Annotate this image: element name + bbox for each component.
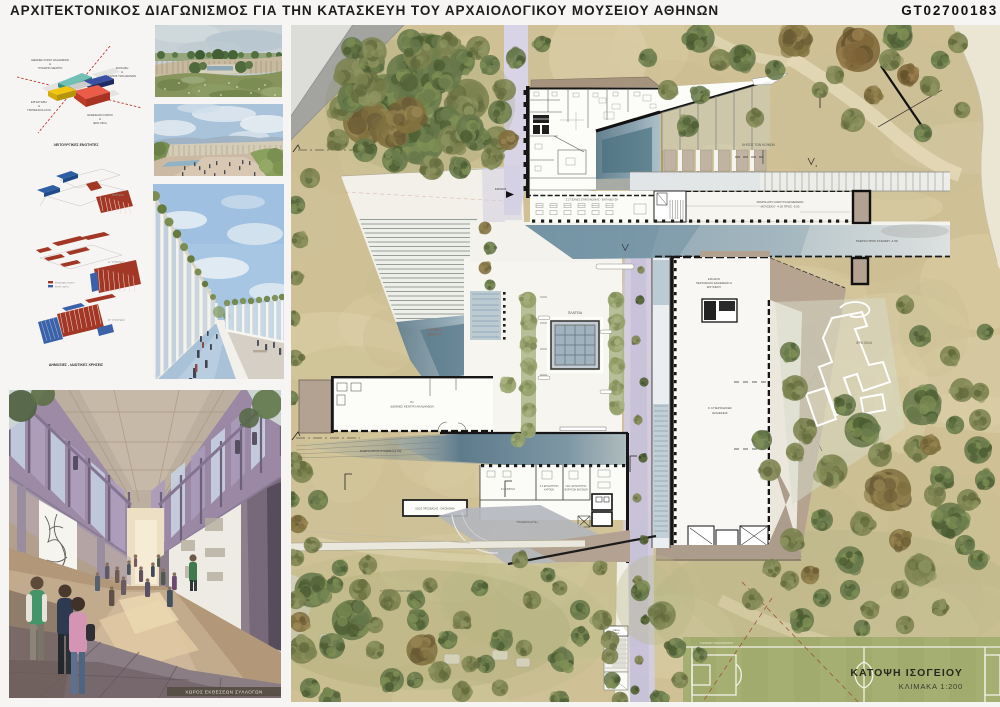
svg-text:ΡΑΜΠΑ ΑΠΟ ΑΙΘΟΥΣΑ ΕΚΘΕΣΕΩΝ: ΡΑΜΠΑ ΑΠΟ ΑΙΘΟΥΣΑ ΕΚΘΕΣΕΩΝ: [757, 200, 804, 204]
svg-text:ΘΕΑΤΡΟ: ΘΕΑΤΡΟ: [427, 333, 441, 337]
svg-text:ΙΕΡΑ ΟΙΚΙΑ: ΙΕΡΑ ΟΙΚΙΑ: [856, 341, 873, 345]
svg-text:ΚΑΡΠΩΝ: ΚΑΡΠΩΝ: [544, 489, 554, 492]
svg-text:ΕΚΘΕΣΕΙΣ: ΕΚΘΕΣΕΙΣ: [712, 411, 727, 415]
svg-text:ΜΟΥΣΕΙΟΥ -4.20 ΠΡΟΣ -5.00: ΜΟΥΣΕΙΟΥ -4.20 ΠΡΟΣ -5.00: [761, 205, 800, 209]
svg-text:ΚΑΤΟΨΗ ΙΣΟΓΕΙΟΥ: ΚΑΤΟΨΗ ΙΣΟΓΕΙΟΥ: [850, 667, 963, 679]
svg-text:ΥΠΑΙΘΡΙΑ ΑΥΛΗ: ΥΠΑΙΘΡΙΑ ΑΥΛΗ: [516, 520, 538, 524]
svg-text:ΣΤΑΣΗ: ΣΤΑΣΗ: [613, 629, 620, 632]
svg-text:ΓΗΠΕΔΟ ΠΟΔΟΣΦΑΙΡΟΥ: ΓΗΠΕΔΟ ΠΟΔΟΣΦΑΙΡΟΥ: [700, 641, 734, 645]
svg-text:ΡΑΜΠΑ ΠΡΟΣ ΣΤΑΘΜΗ -4.50: ΡΑΜΠΑ ΠΡΟΣ ΣΤΑΘΜΗ -4.50: [856, 239, 898, 243]
svg-text:Σ.3 ΠΕΡΙΟΔΙΚΕΣ: Σ.3 ΠΕΡΙΟΔΙΚΕΣ: [708, 406, 732, 410]
svg-text:ΚΗΠΟΣ ΤΩΝ ΚΟΙΝΩΝ: ΚΗΠΟΣ ΤΩΝ ΚΟΙΝΩΝ: [742, 143, 776, 147]
svg-text:ΠΛΑΤΕΙΑ: ΠΛΑΤΕΙΑ: [568, 311, 583, 315]
svg-text:ΜΟΥΣΕΙΟΥ: ΜΟΥΣΕΙΟΥ: [707, 285, 722, 289]
svg-text:Σ1: Σ1: [410, 400, 414, 404]
svg-text:ΡΑΜΠΑ ΠΡΟΣ ΣΤΑΘΜΗ (4.20): ΡΑΜΠΑ ΠΡΟΣ ΣΤΑΘΜΗ (4.20): [360, 449, 401, 453]
svg-text:ΥΠΑΙΘΡΙΟ: ΥΠΑΙΘΡΙΟ: [426, 328, 442, 332]
svg-text:Σ1.5 ΒΙΒΛΙΟ: Σ1.5 ΒΙΒΛΙΟ: [501, 488, 515, 491]
svg-text:ΟΔΟΣ ΠΡΟΣΒΑΣΗΣ - ΟΙΚΟΝΟΜΙΑ: ΟΔΟΣ ΠΡΟΣΒΑΣΗΣ - ΟΙΚΟΝΟΜΙΑ: [415, 508, 455, 511]
svg-text:ΦΟΡΗΤΩΝ ΕΙΚΟΝΩΝ: ΦΟΡΗΤΩΝ ΕΙΚΟΝΩΝ: [564, 489, 588, 492]
svg-text:ΕΙΣΟΔΟΣ: ΕΙΣΟΔΟΣ: [495, 187, 507, 191]
svg-text:Σ.2 ΤΕΧΝΕΣ ΕΠΙΚΟΙΝΩΝΙΑΣ - ΕΚΠΑ: Σ.2 ΤΕΧΝΕΣ ΕΠΙΚΟΙΝΩΝΙΑΣ - ΕΚΠΑΙΔΕΥΣΗ: [566, 198, 619, 202]
svg-text:ΚΛΙΜΑΚΑ 1:200: ΚΛΙΜΑΚΑ 1:200: [899, 682, 963, 691]
svg-text:ΔΙΕΘΝΕΣ ΚΕΝΤΡΟ ΑΚΑΔΗΜΙΩΝ: ΔΙΕΘΝΕΣ ΚΕΝΤΡΟ ΑΚΑΔΗΜΙΩΝ: [390, 405, 433, 409]
